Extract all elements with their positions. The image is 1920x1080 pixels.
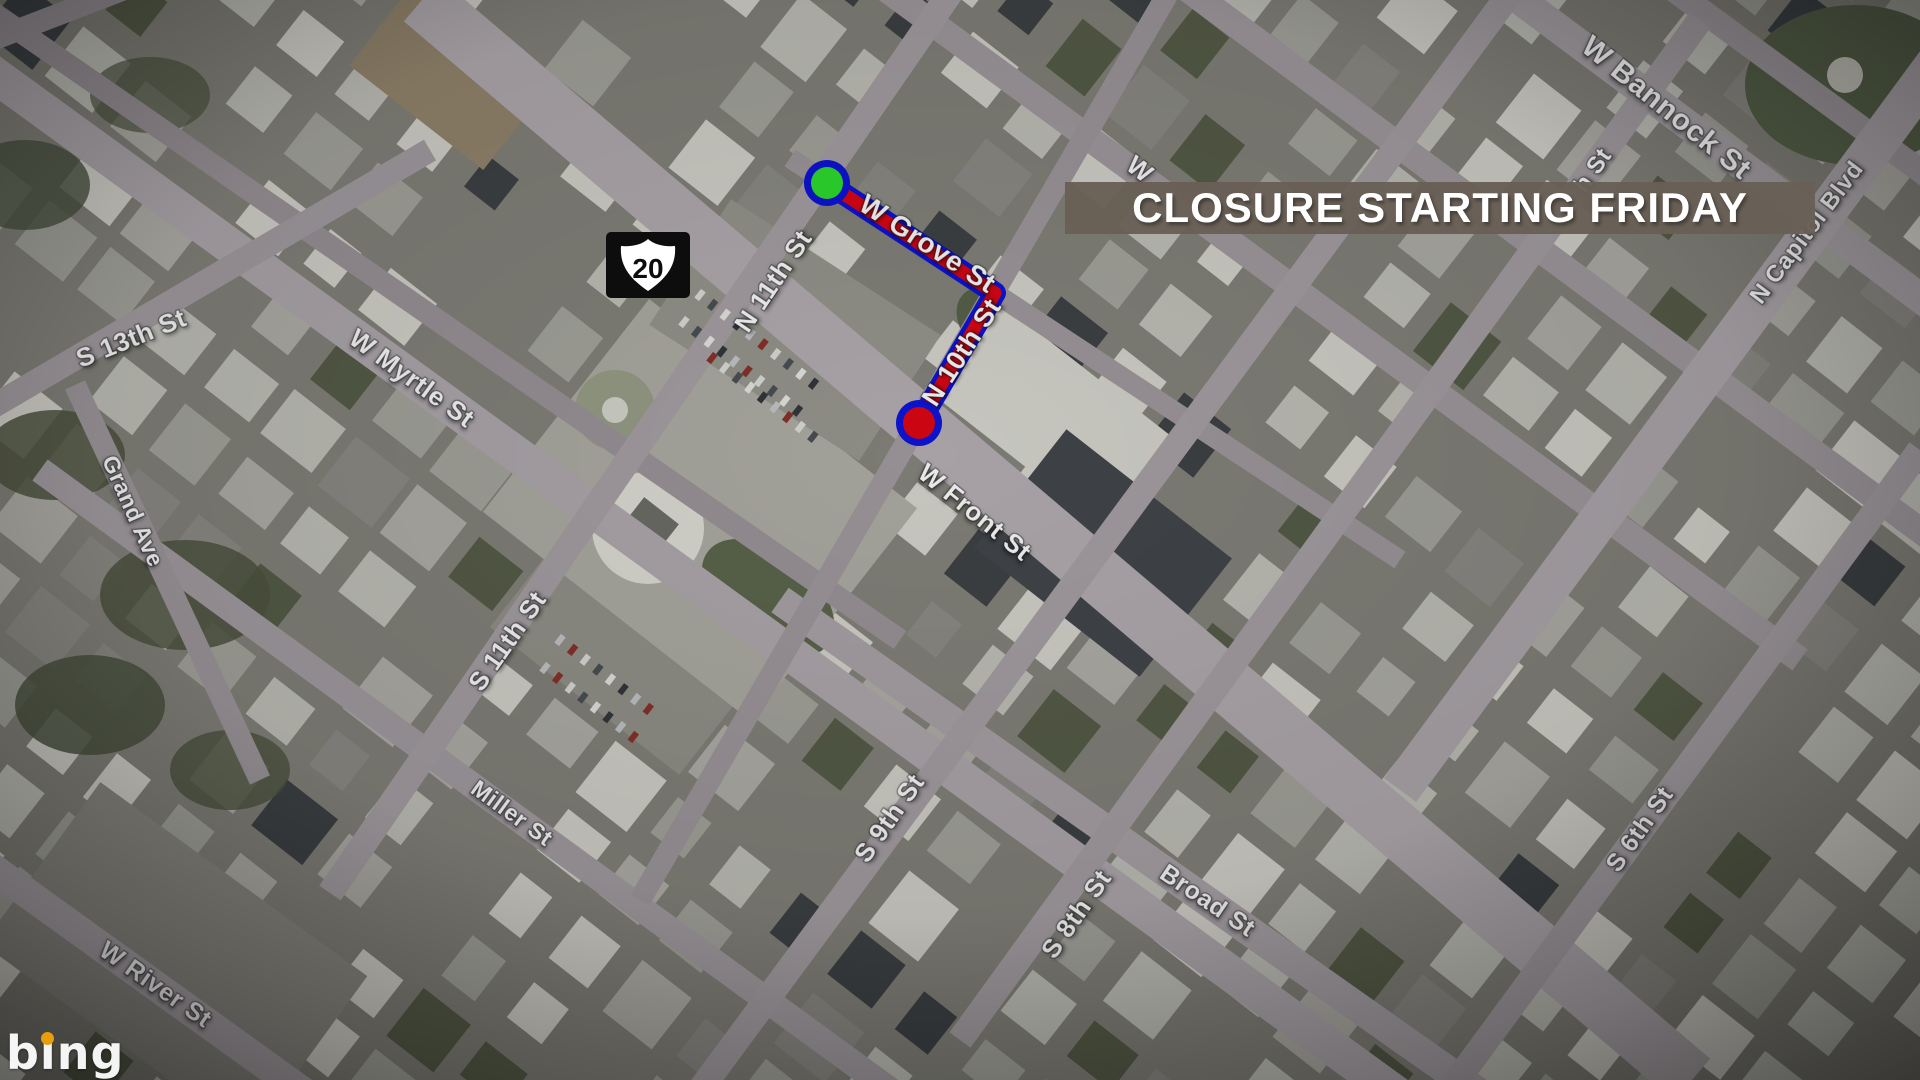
bing-logo: bing xyxy=(6,1026,124,1080)
us-route-20-shield: 20 xyxy=(606,232,690,298)
bing-logo-dot-icon xyxy=(41,1032,54,1045)
bing-logo-text: bing xyxy=(6,1026,124,1080)
vignette xyxy=(0,0,1920,1080)
shield-number: 20 xyxy=(632,253,663,284)
aerial-map: S 13th StGrand AveW Myrtle StS 11th StMi… xyxy=(0,0,1920,1080)
closure-banner: CLOSURE STARTING FRIDAY xyxy=(1065,182,1815,234)
us-highway-shield-icon: 20 xyxy=(606,232,690,298)
closure-banner-text: CLOSURE STARTING FRIDAY xyxy=(1132,184,1748,232)
news-closure-map-graphic: S 13th StGrand AveW Myrtle StS 11th StMi… xyxy=(0,0,1920,1080)
